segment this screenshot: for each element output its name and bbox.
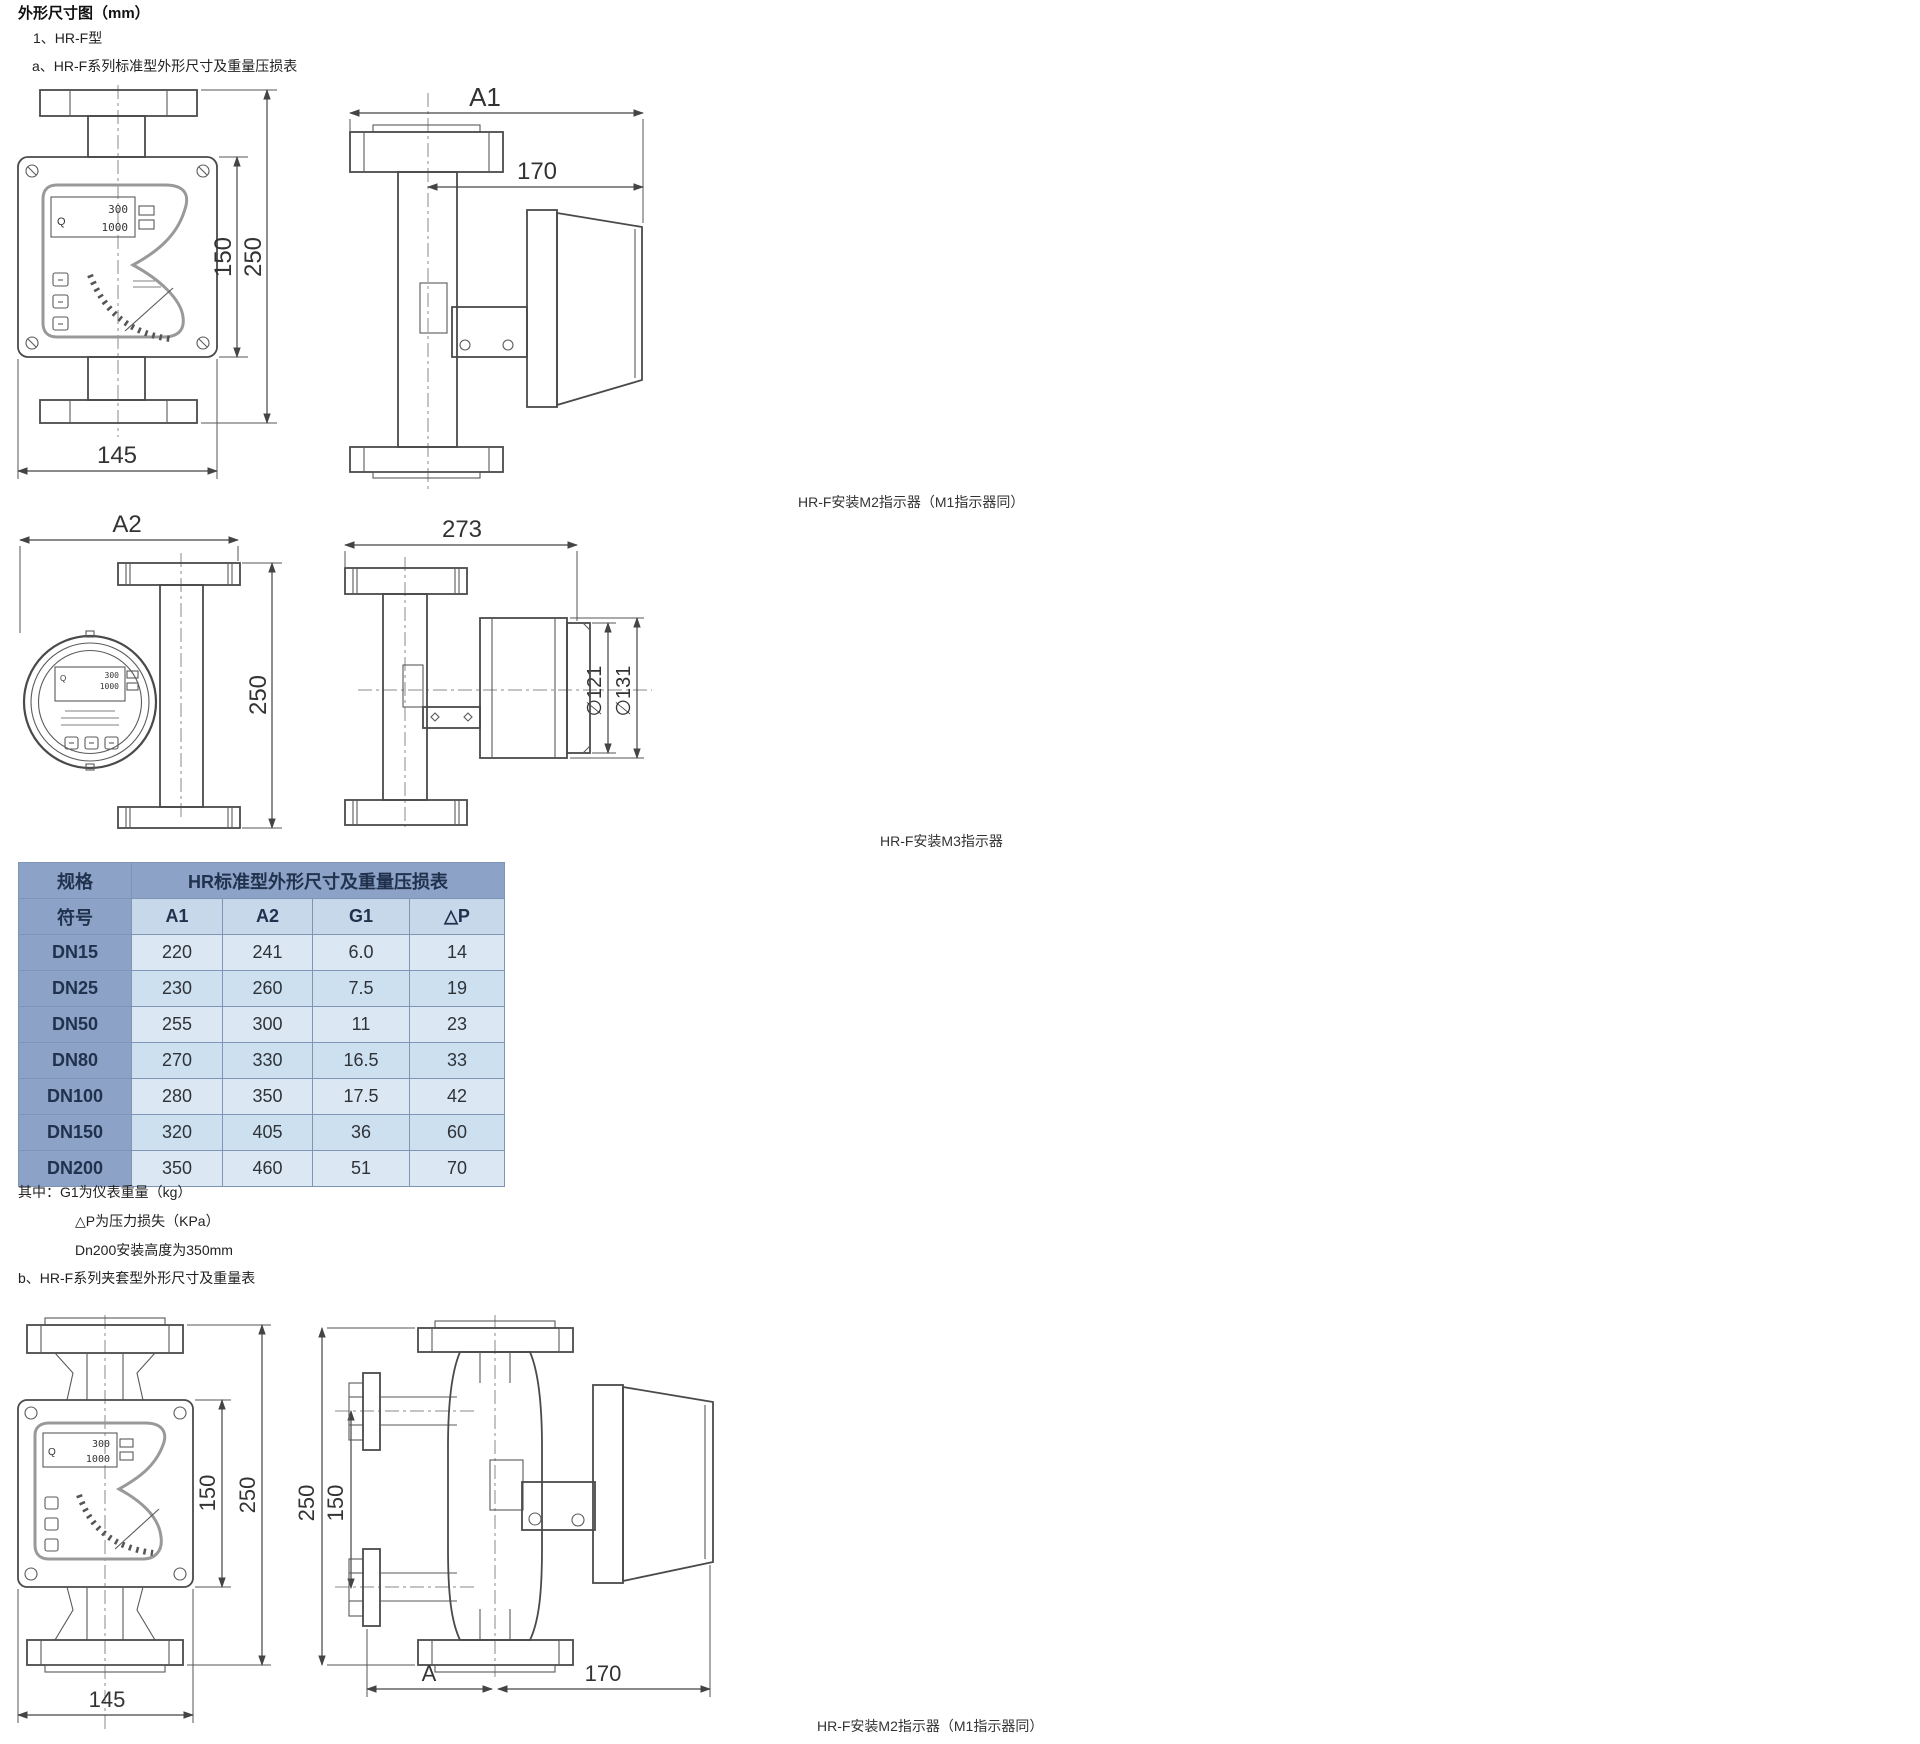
dim-250: 250 [245,675,272,715]
lcd-value-2: 1000 [100,682,119,691]
dim-170: 170 [585,1661,622,1686]
lcd-value-2: 1000 [102,221,129,234]
dim-a: A [422,1661,437,1686]
dim-150: 150 [195,1475,220,1512]
drawing-standard-side-view-m2: A1 170 [285,75,665,500]
dimensions-left: 250 150 [294,1328,415,1665]
drawing-jacket-side-view-m2: 250 150 [295,1315,715,1744]
dimensions: A1 170 [350,82,643,223]
top-flange [118,563,240,585]
lcd-q: Q [57,216,66,228]
drawing-jacket-front-view: Q 300 1000 150 250 [15,1315,280,1735]
dial-scale [90,275,170,339]
symbol-label: 符号 [19,899,132,935]
note-3: Dn200安装高度为350mm [75,1240,233,1260]
dim-145: 145 [97,442,137,469]
table-row: DN25 230 260 7.5 19 [19,971,505,1007]
indicator-m2 [420,210,642,407]
lcd-display: Q 300 1000 [43,1433,133,1467]
spec-table: 规格 HR标准型外形尺寸及重量压损表 符号 A1 A2 G1 △P DN15 2… [18,862,505,1187]
lcd-q: Q [48,1447,56,1458]
dial-needle [115,1509,159,1549]
lcd-value-1: 300 [105,671,120,680]
dim-150: 150 [323,1485,348,1522]
indicator-m2 [490,1385,713,1583]
dim-250: 250 [235,1477,260,1514]
bottom-flange [118,807,240,828]
bottom-flange [345,800,467,825]
dim-250: 250 [294,1485,319,1522]
header-a2: A2 [223,899,313,935]
top-flange [350,125,503,172]
indicator-m3-face: Q 300 1000 [24,631,156,770]
buttons [65,737,118,749]
dim-170: 170 [517,158,557,185]
drawing-standard-front-view: Q 300 1000 150 250 [15,85,285,485]
table-header-row: 规格 HR标准型外形尺寸及重量压损表 [19,863,505,899]
header-g1: G1 [313,899,410,935]
table-row: DN15 220 241 6.0 14 [19,935,505,971]
table-row: DN100 280 350 17.5 42 [19,1079,505,1115]
dim-a1: A1 [469,82,501,112]
header-a1: A1 [132,899,223,935]
col-group: HR标准型外形尺寸及重量压损表 [132,863,505,899]
dimensions-bottom: A 170 [367,1565,710,1697]
indicator-m3-housing [403,618,590,758]
caption-m2-top: HR-F安装M2指示器（M1指示器同） [798,492,1024,512]
table-row: DN50 255 300 11 23 [19,1007,505,1043]
col-spec: 规格 [19,863,132,899]
lcd-value-1: 300 [92,1439,110,1450]
note-1: 其中：G1为仪表重量（kg） [18,1182,191,1202]
section-1a: a、HR-F系列标准型外形尺寸及重量压损表 [32,56,297,76]
dial-needle [125,288,173,331]
dimensions: 150 250 145 [18,90,277,479]
header-dp: △P [410,899,505,935]
table-row: DN150 320 405 36 60 [19,1115,505,1151]
buttons [45,1497,58,1551]
drawing-m3-side-view: 273 ∅121 ∅131 [300,515,660,845]
bottom-flange [350,447,503,478]
lcd-value-2: 1000 [86,1454,110,1465]
drawing-m3-front-view: A2 250 Q 300 1000 [15,515,305,845]
dimensions: 150 250 145 [18,1325,271,1723]
dim-131: ∅131 [613,666,635,717]
dim-150: 150 [210,237,237,277]
section-1: 1、HR-F型 [33,28,102,48]
caption-m2-bottom: HR-F安装M2指示器（M1指示器同） [817,1716,1043,1736]
caption-m3: HR-F安装M3指示器 [880,831,1003,851]
lcd-q: Q [60,674,66,683]
dim-273: 273 [442,516,482,543]
section-1b: b、HR-F系列夹套型外形尺寸及重量表 [18,1268,255,1288]
table-row: DN80 270 330 16.5 33 [19,1043,505,1079]
lcd-display: Q 300 1000 [51,197,154,237]
dimensions: A2 250 [20,511,282,828]
top-flange [345,568,467,594]
dim-145: 145 [89,1687,126,1712]
table-symbol-row: 符号 A1 A2 G1 △P [19,899,505,935]
buttons [53,273,68,330]
page-title: 外形尺寸图（mm） [18,2,150,23]
dim-121: ∅121 [584,666,606,717]
lcd-value-1: 300 [108,203,128,216]
dim-250: 250 [240,237,267,277]
dim-a2: A2 [112,511,141,538]
dimensions: 273 ∅121 ∅131 [345,516,644,758]
datasheet-page: 外形尺寸图（mm） 1、HR-F型 a、HR-F系列标准型外形尺寸及重量压损表 … [0,0,1920,1744]
note-2: △P为压力损失（KPa） [75,1211,220,1231]
